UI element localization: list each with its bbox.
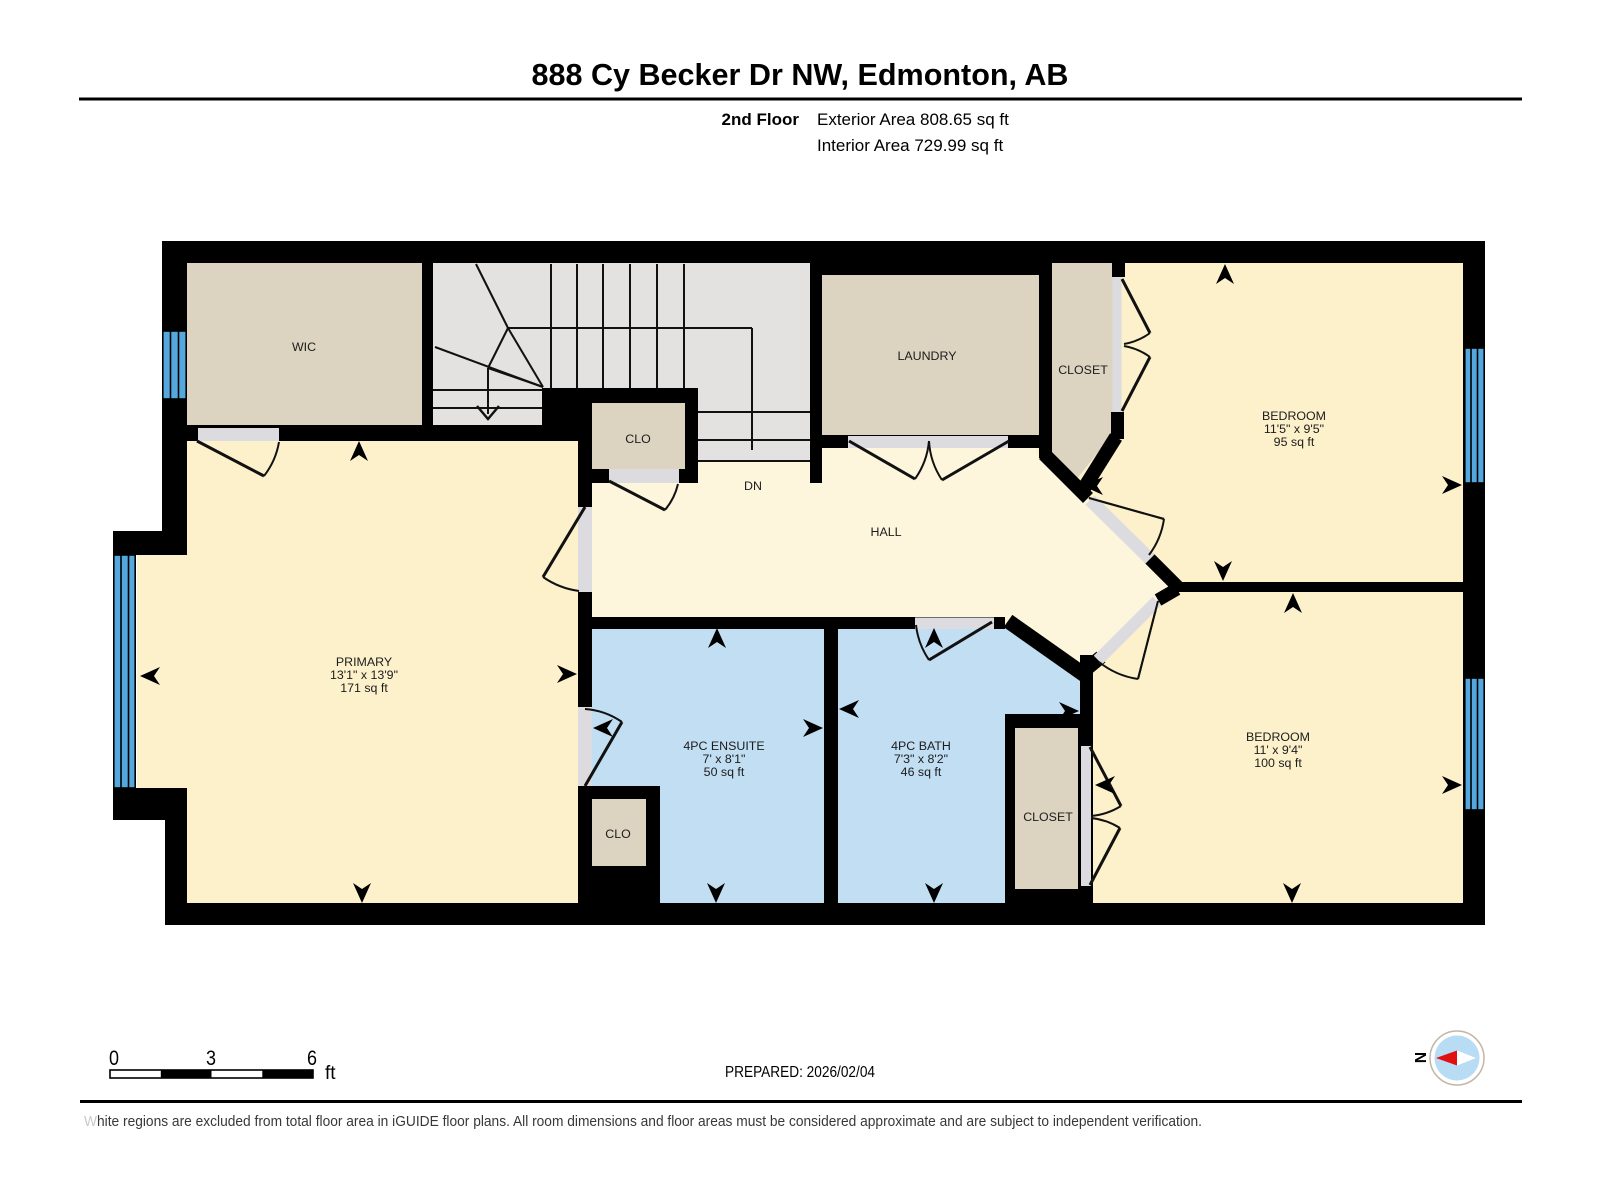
svg-text:7'3" x 8'2": 7'3" x 8'2" — [894, 752, 948, 766]
svg-text:13'1" x 13'9": 13'1" x 13'9" — [330, 668, 398, 682]
svg-text:ft: ft — [325, 1063, 336, 1084]
svg-text:White regions are excluded fro: White regions are excluded from total fl… — [84, 1114, 1202, 1130]
svg-text:BEDROOM: BEDROOM — [1246, 730, 1310, 744]
svg-text:CLO: CLO — [625, 432, 651, 446]
svg-text:4PC BATH: 4PC BATH — [891, 739, 951, 753]
svg-text:7' x 8'1": 7' x 8'1" — [703, 752, 746, 766]
svg-text:CLOSET: CLOSET — [1023, 810, 1073, 824]
svg-text:BEDROOM: BEDROOM — [1262, 409, 1326, 423]
svg-text:N: N — [1413, 1052, 1430, 1063]
svg-text:50 sq ft: 50 sq ft — [704, 765, 745, 779]
svg-text:CLOSET: CLOSET — [1058, 363, 1108, 377]
svg-text:100 sq ft: 100 sq ft — [1254, 756, 1302, 770]
svg-text:4PC ENSUITE: 4PC ENSUITE — [683, 739, 764, 753]
svg-text:11'5" x 9'5": 11'5" x 9'5" — [1264, 422, 1324, 436]
svg-text:6: 6 — [307, 1047, 317, 1070]
svg-text:HALL: HALL — [871, 525, 902, 539]
svg-text:Exterior Area 808.65 sq ft: Exterior Area 808.65 sq ft — [817, 110, 1009, 129]
svg-text:95 sq ft: 95 sq ft — [1274, 435, 1315, 449]
svg-text:PREPARED: 2026/02/04: PREPARED: 2026/02/04 — [725, 1064, 875, 1081]
svg-text:3: 3 — [206, 1047, 216, 1070]
svg-text:WIC: WIC — [292, 340, 316, 354]
svg-text:CLO: CLO — [605, 827, 631, 841]
svg-text:11' x 9'4": 11' x 9'4" — [1254, 743, 1303, 757]
svg-text:PRIMARY: PRIMARY — [336, 655, 392, 669]
svg-text:2nd Floor: 2nd Floor — [722, 110, 800, 129]
svg-text:DN: DN — [744, 479, 762, 493]
svg-text:171 sq ft: 171 sq ft — [340, 681, 388, 695]
svg-text:0: 0 — [109, 1047, 119, 1070]
svg-text:LAUNDRY: LAUNDRY — [898, 349, 957, 363]
svg-text:Interior Area 729.99 sq ft: Interior Area 729.99 sq ft — [817, 136, 1003, 155]
svg-text:46 sq ft: 46 sq ft — [901, 765, 942, 779]
svg-text:888 Cy Becker Dr NW, Edmonton,: 888 Cy Becker Dr NW, Edmonton, AB — [532, 58, 1069, 92]
